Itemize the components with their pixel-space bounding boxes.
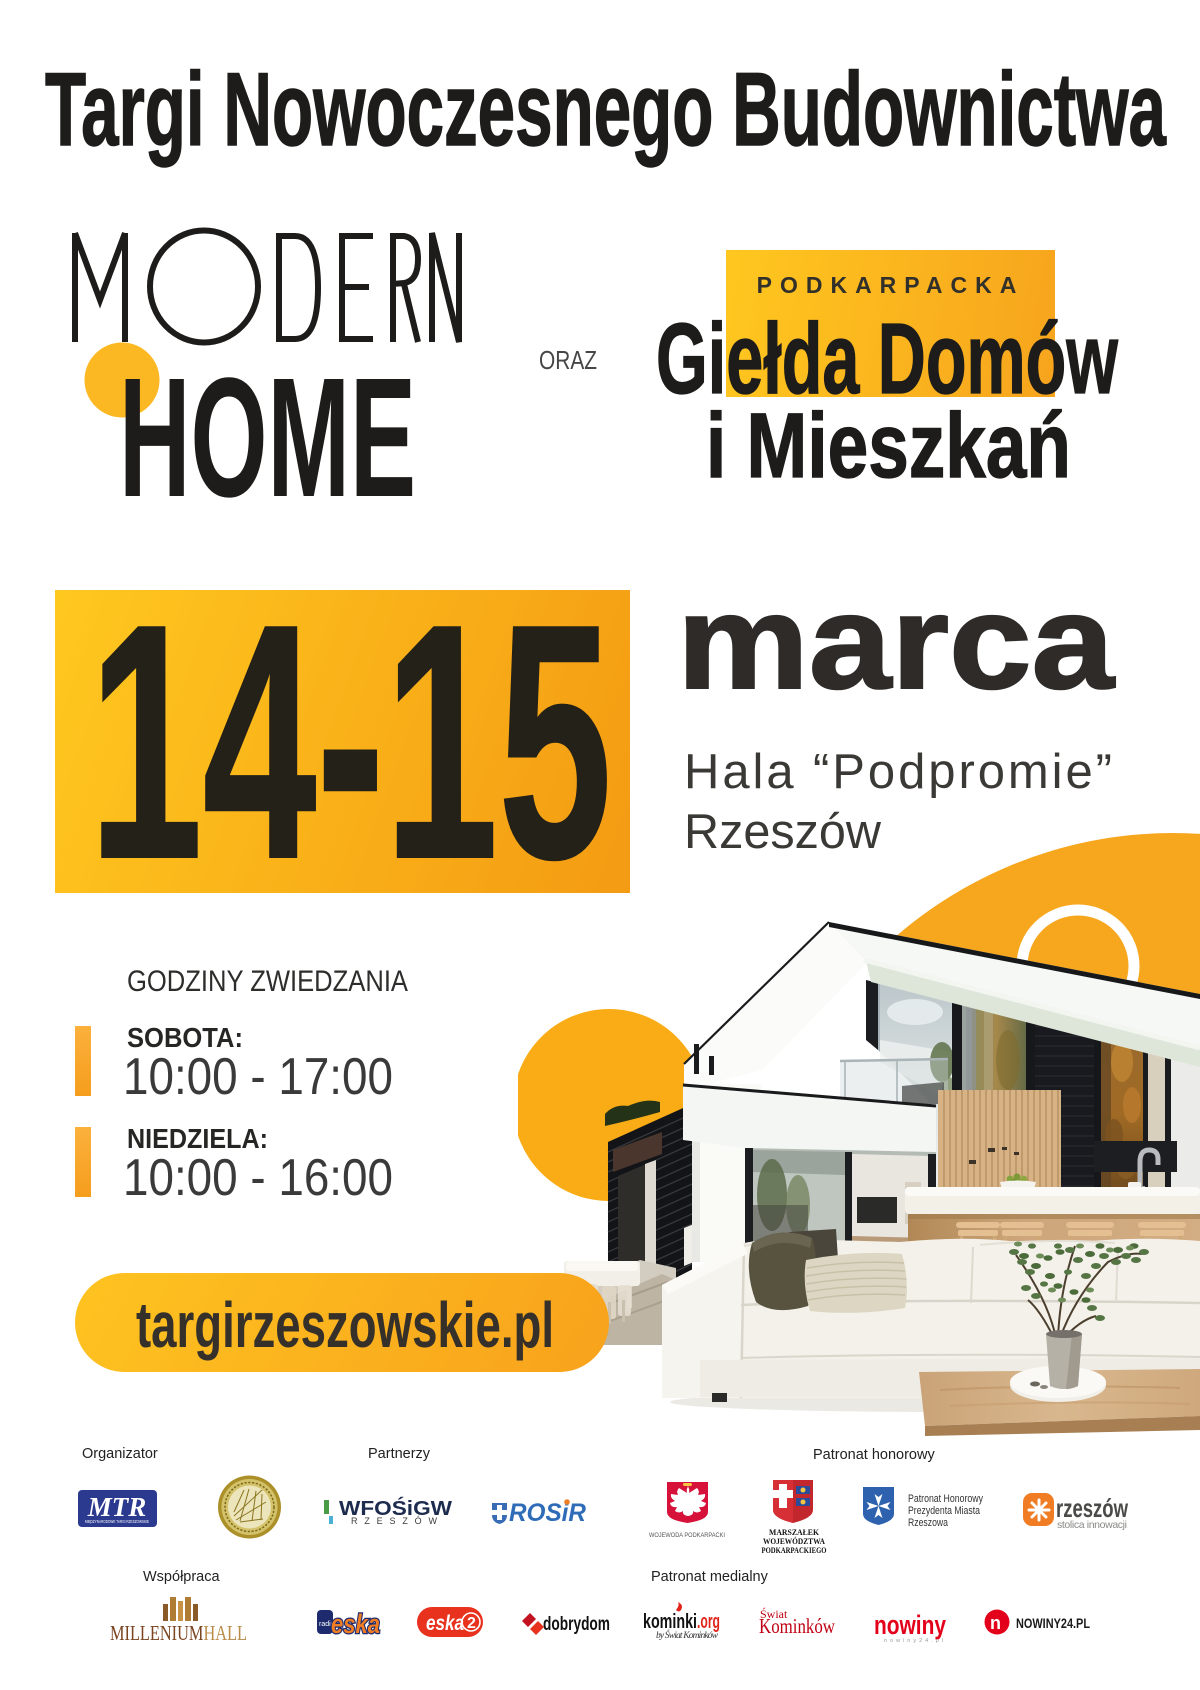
svg-text:Prezydenta Miasta: Prezydenta Miasta	[908, 1505, 981, 1517]
svg-text:ROSiR: ROSiR	[509, 1499, 586, 1527]
svg-text:GODZINY ZWIEDZANIA: GODZINY ZWIEDZANIA	[127, 965, 408, 998]
svg-text:nowiny24.pl: nowiny24.pl	[884, 1638, 946, 1644]
svg-text:Targi Nowoczesnego Budownictwa: Targi Nowoczesnego Budownictwa	[45, 52, 1167, 168]
svg-text:WOJEWODA PODKARPACKI: WOJEWODA PODKARPACKI	[649, 1532, 725, 1539]
svg-text:ORAZ: ORAZ	[539, 345, 597, 375]
svg-text:MTR: MTR	[87, 1492, 147, 1522]
svg-text:10:00 - 16:00: 10:00 - 16:00	[123, 1149, 393, 1206]
svg-text:n: n	[990, 1613, 1001, 1633]
svg-text:.org: .org	[697, 1611, 720, 1633]
svg-text:i Mieszkań: i Mieszkań	[706, 395, 1071, 497]
svg-text:MIĘDZYNARODOWE TARGI RZESZOWSK: MIĘDZYNARODOWE TARGI RZESZOWSKIE	[85, 1519, 149, 1524]
svg-text:NOWINY24.PL: NOWINY24.PL	[1016, 1616, 1090, 1631]
svg-text:stolica innowacji: stolica innowacji	[1057, 1519, 1127, 1531]
svg-text:PODKARPACKIEGO: PODKARPACKIEGO	[762, 1545, 827, 1555]
svg-text:kominki: kominki	[643, 1611, 697, 1633]
svg-text:MILLENIUMHALL: MILLENIUMHALL	[110, 1621, 247, 1645]
svg-text:Hala “Podpromie”: Hala “Podpromie”	[684, 745, 1112, 799]
svg-text:marca: marca	[677, 568, 1116, 710]
svg-text:eska: eska	[331, 1609, 380, 1639]
svg-text:Rzeszowa: Rzeszowa	[908, 1517, 949, 1529]
svg-text:HOME: HOME	[119, 343, 416, 520]
svg-text:by Świat Kominków: by Świat Kominków	[656, 1629, 719, 1641]
svg-text:nowiny: nowiny	[874, 1610, 946, 1640]
svg-text:eska: eska	[426, 1612, 464, 1635]
svg-text:10:00 - 17:00: 10:00 - 17:00	[123, 1048, 393, 1105]
svg-text:2: 2	[467, 1615, 476, 1632]
svg-text:Kominków: Kominków	[759, 1614, 836, 1638]
svg-text:Patronat Honorowy: Patronat Honorowy	[908, 1493, 983, 1505]
svg-text:targirzeszowskie.pl: targirzeszowskie.pl	[136, 1289, 554, 1361]
svg-text:dobrydom: dobrydom	[543, 1613, 610, 1635]
